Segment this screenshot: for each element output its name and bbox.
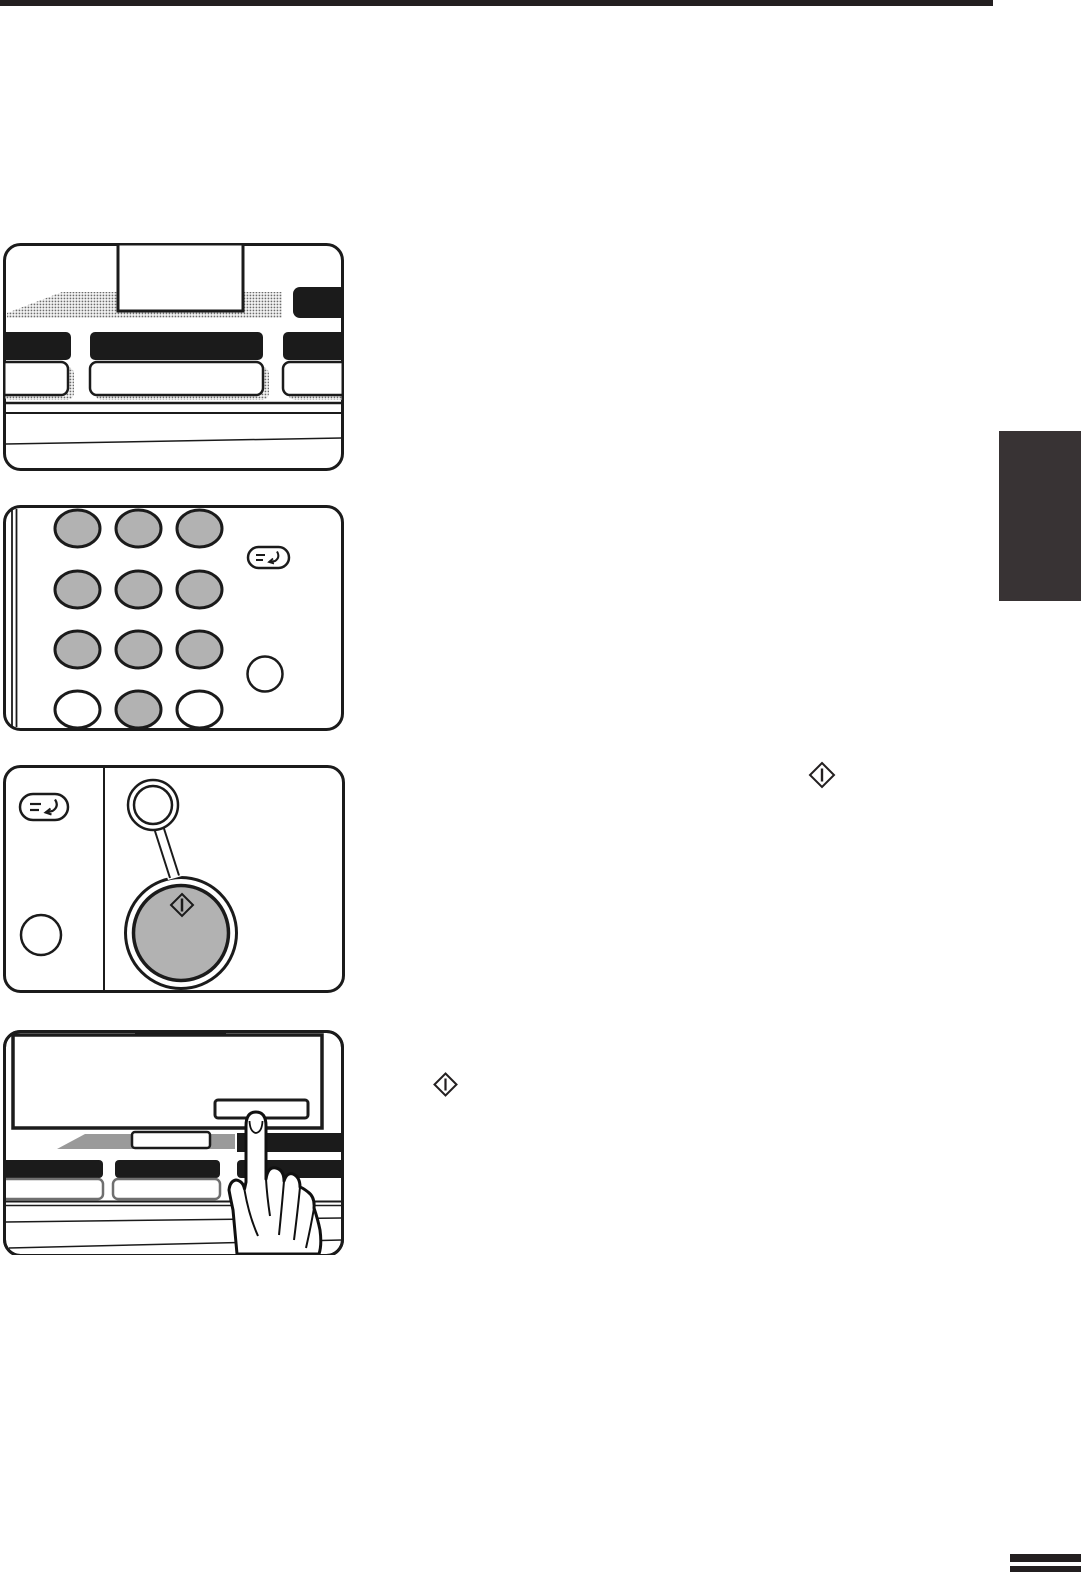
figure-numeric-keypad (3, 505, 344, 731)
panel-frame (5, 507, 343, 730)
program-key (20, 794, 68, 820)
key-bar-right (283, 332, 344, 360)
footer-bar (1010, 1554, 1081, 1562)
top-rule (0, 0, 993, 6)
program-key (248, 547, 289, 568)
key-pound (177, 691, 222, 728)
key-2 (116, 510, 161, 547)
white-key (132, 1132, 210, 1148)
white-key-left (3, 1179, 103, 1199)
figure-touch-panel (3, 1030, 344, 1255)
figure-start-key (3, 765, 345, 993)
key-8 (116, 631, 161, 668)
key-block-right (293, 287, 344, 318)
key-5 (116, 571, 161, 608)
key-9 (177, 631, 222, 668)
key-7 (55, 631, 100, 668)
key-0 (116, 691, 161, 728)
start-key-icon-1 (808, 761, 836, 789)
key-star (55, 691, 100, 728)
key-3 (177, 510, 222, 547)
start-indicator-lamp (134, 786, 172, 824)
key-4 (55, 571, 100, 608)
white-key-right (283, 362, 344, 395)
key-1 (55, 510, 100, 547)
chapter-tab (999, 431, 1081, 601)
white-key-middle (113, 1179, 220, 1199)
key-bar-middle (90, 332, 263, 360)
clear-key (21, 915, 61, 955)
white-key-middle (90, 362, 263, 395)
clear-key (248, 657, 283, 692)
start-key-icon-2 (433, 1072, 458, 1097)
white-key-left (3, 362, 68, 395)
footer-bar (1010, 1566, 1081, 1572)
manual-page (0, 0, 1081, 1572)
key-bar-middle (115, 1160, 220, 1178)
key-bar-left (3, 332, 71, 360)
figure-operation-panel (3, 243, 344, 471)
key-bar-left (3, 1160, 103, 1178)
raised-display (118, 243, 243, 311)
key-6 (177, 571, 222, 608)
